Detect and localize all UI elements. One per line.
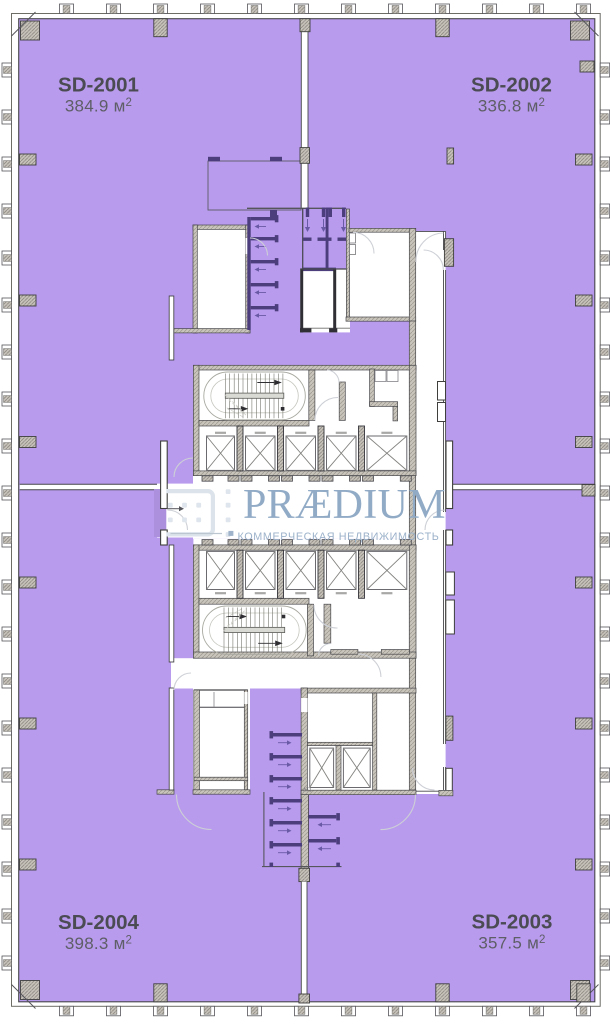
svg-text:SD-2002: SD-2002	[471, 74, 552, 97]
svg-text:SD-2003: SD-2003	[472, 911, 553, 934]
svg-text:SD-2004: SD-2004	[58, 911, 140, 934]
svg-text:АТ1: АТ1	[303, 788, 312, 794]
svg-text:384.9 м2: 384.9 м2	[65, 97, 132, 116]
svg-text:398.3 м2: 398.3 м2	[65, 934, 132, 953]
svg-text:PRÆDIUM: PRÆDIUM	[243, 482, 446, 528]
svg-text:336.8 м2: 336.8 м2	[478, 97, 545, 116]
svg-text:КОММЕРЧЕСКАЯ НЕДВИЖИМОСТЬ: КОММЕРЧЕСКАЯ НЕДВИЖИМОСТЬ	[238, 531, 440, 543]
svg-text:SD-2001: SD-2001	[58, 74, 139, 97]
svg-text:357.5 м2: 357.5 м2	[478, 934, 545, 953]
